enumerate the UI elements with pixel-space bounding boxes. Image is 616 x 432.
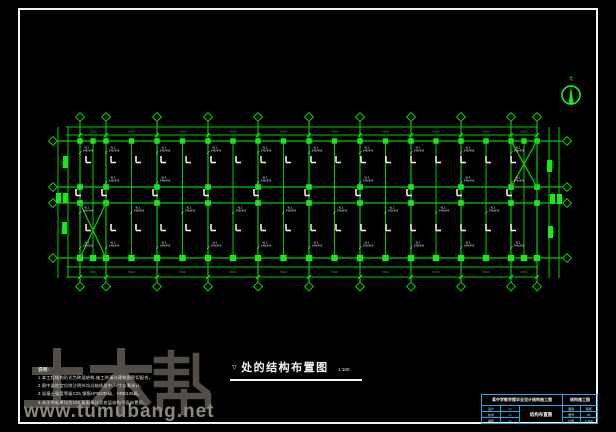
- tb-label: 图别: [563, 406, 581, 411]
- cad-sheet: 1800360036003600360036003600360036001800…: [0, 0, 616, 432]
- drawing-scale: 1:100: [338, 367, 350, 372]
- tb-label: 比例: [563, 418, 581, 423]
- title-block-project: 某中学教学楼毕业设计结构施工图: [482, 395, 563, 405]
- tb-value: 结施: [581, 406, 598, 411]
- tb-value: 1:100: [581, 418, 598, 423]
- notes-line: 4.未注明板厚均为100,板配筋详见各层结构平面布置图。: [38, 399, 153, 407]
- title-block-drawing-name: 结构布置图: [520, 406, 563, 423]
- title-block-sheet-set: 结构施工图: [563, 395, 597, 405]
- tb-label: 校对: [482, 412, 501, 417]
- title-block: 某中学教学楼毕业设计结构施工图 结构施工图 设计 ×× 校对 ×× 审核 ×× …: [481, 394, 598, 424]
- tb-value: ××: [501, 412, 519, 417]
- notes-line: 1.本工程结构形式为砖混结构,施工时请与建筑图密切配合。: [38, 374, 153, 382]
- tb-value: ××: [501, 418, 519, 423]
- title-underline: [230, 379, 362, 381]
- notes-line: 2.图中梁柱定位除注明外均沿轴线居中,尺寸以毫米计。: [38, 382, 153, 390]
- drawing-title: ▽ 处的结构布置图 1:100: [232, 358, 350, 376]
- tb-label: 审核: [482, 418, 501, 423]
- tb-label: 图号: [563, 412, 581, 417]
- notes-block: 说明: 1.本工程结构形式为砖混结构,施工时请与建筑图密切配合。 2.图中梁柱定…: [38, 366, 153, 407]
- tb-value: ××: [501, 406, 519, 411]
- notes-heading: 说明:: [38, 366, 153, 374]
- title-block-signatures: 设计 ×× 校对 ×× 审核 ××: [482, 406, 520, 423]
- notes-line: 3.混凝土强度等级C25,钢筋HPB235级、HRB335级。: [38, 390, 153, 398]
- elevation-mark-icon: ▽: [232, 365, 237, 371]
- title-block-sheet-info: 图别 结施 图号 05 比例 1:100: [563, 406, 597, 423]
- tb-value: 05: [581, 412, 598, 417]
- drawing-title-text: 处的结构布置图: [241, 362, 329, 374]
- tb-label: 设计: [482, 406, 501, 411]
